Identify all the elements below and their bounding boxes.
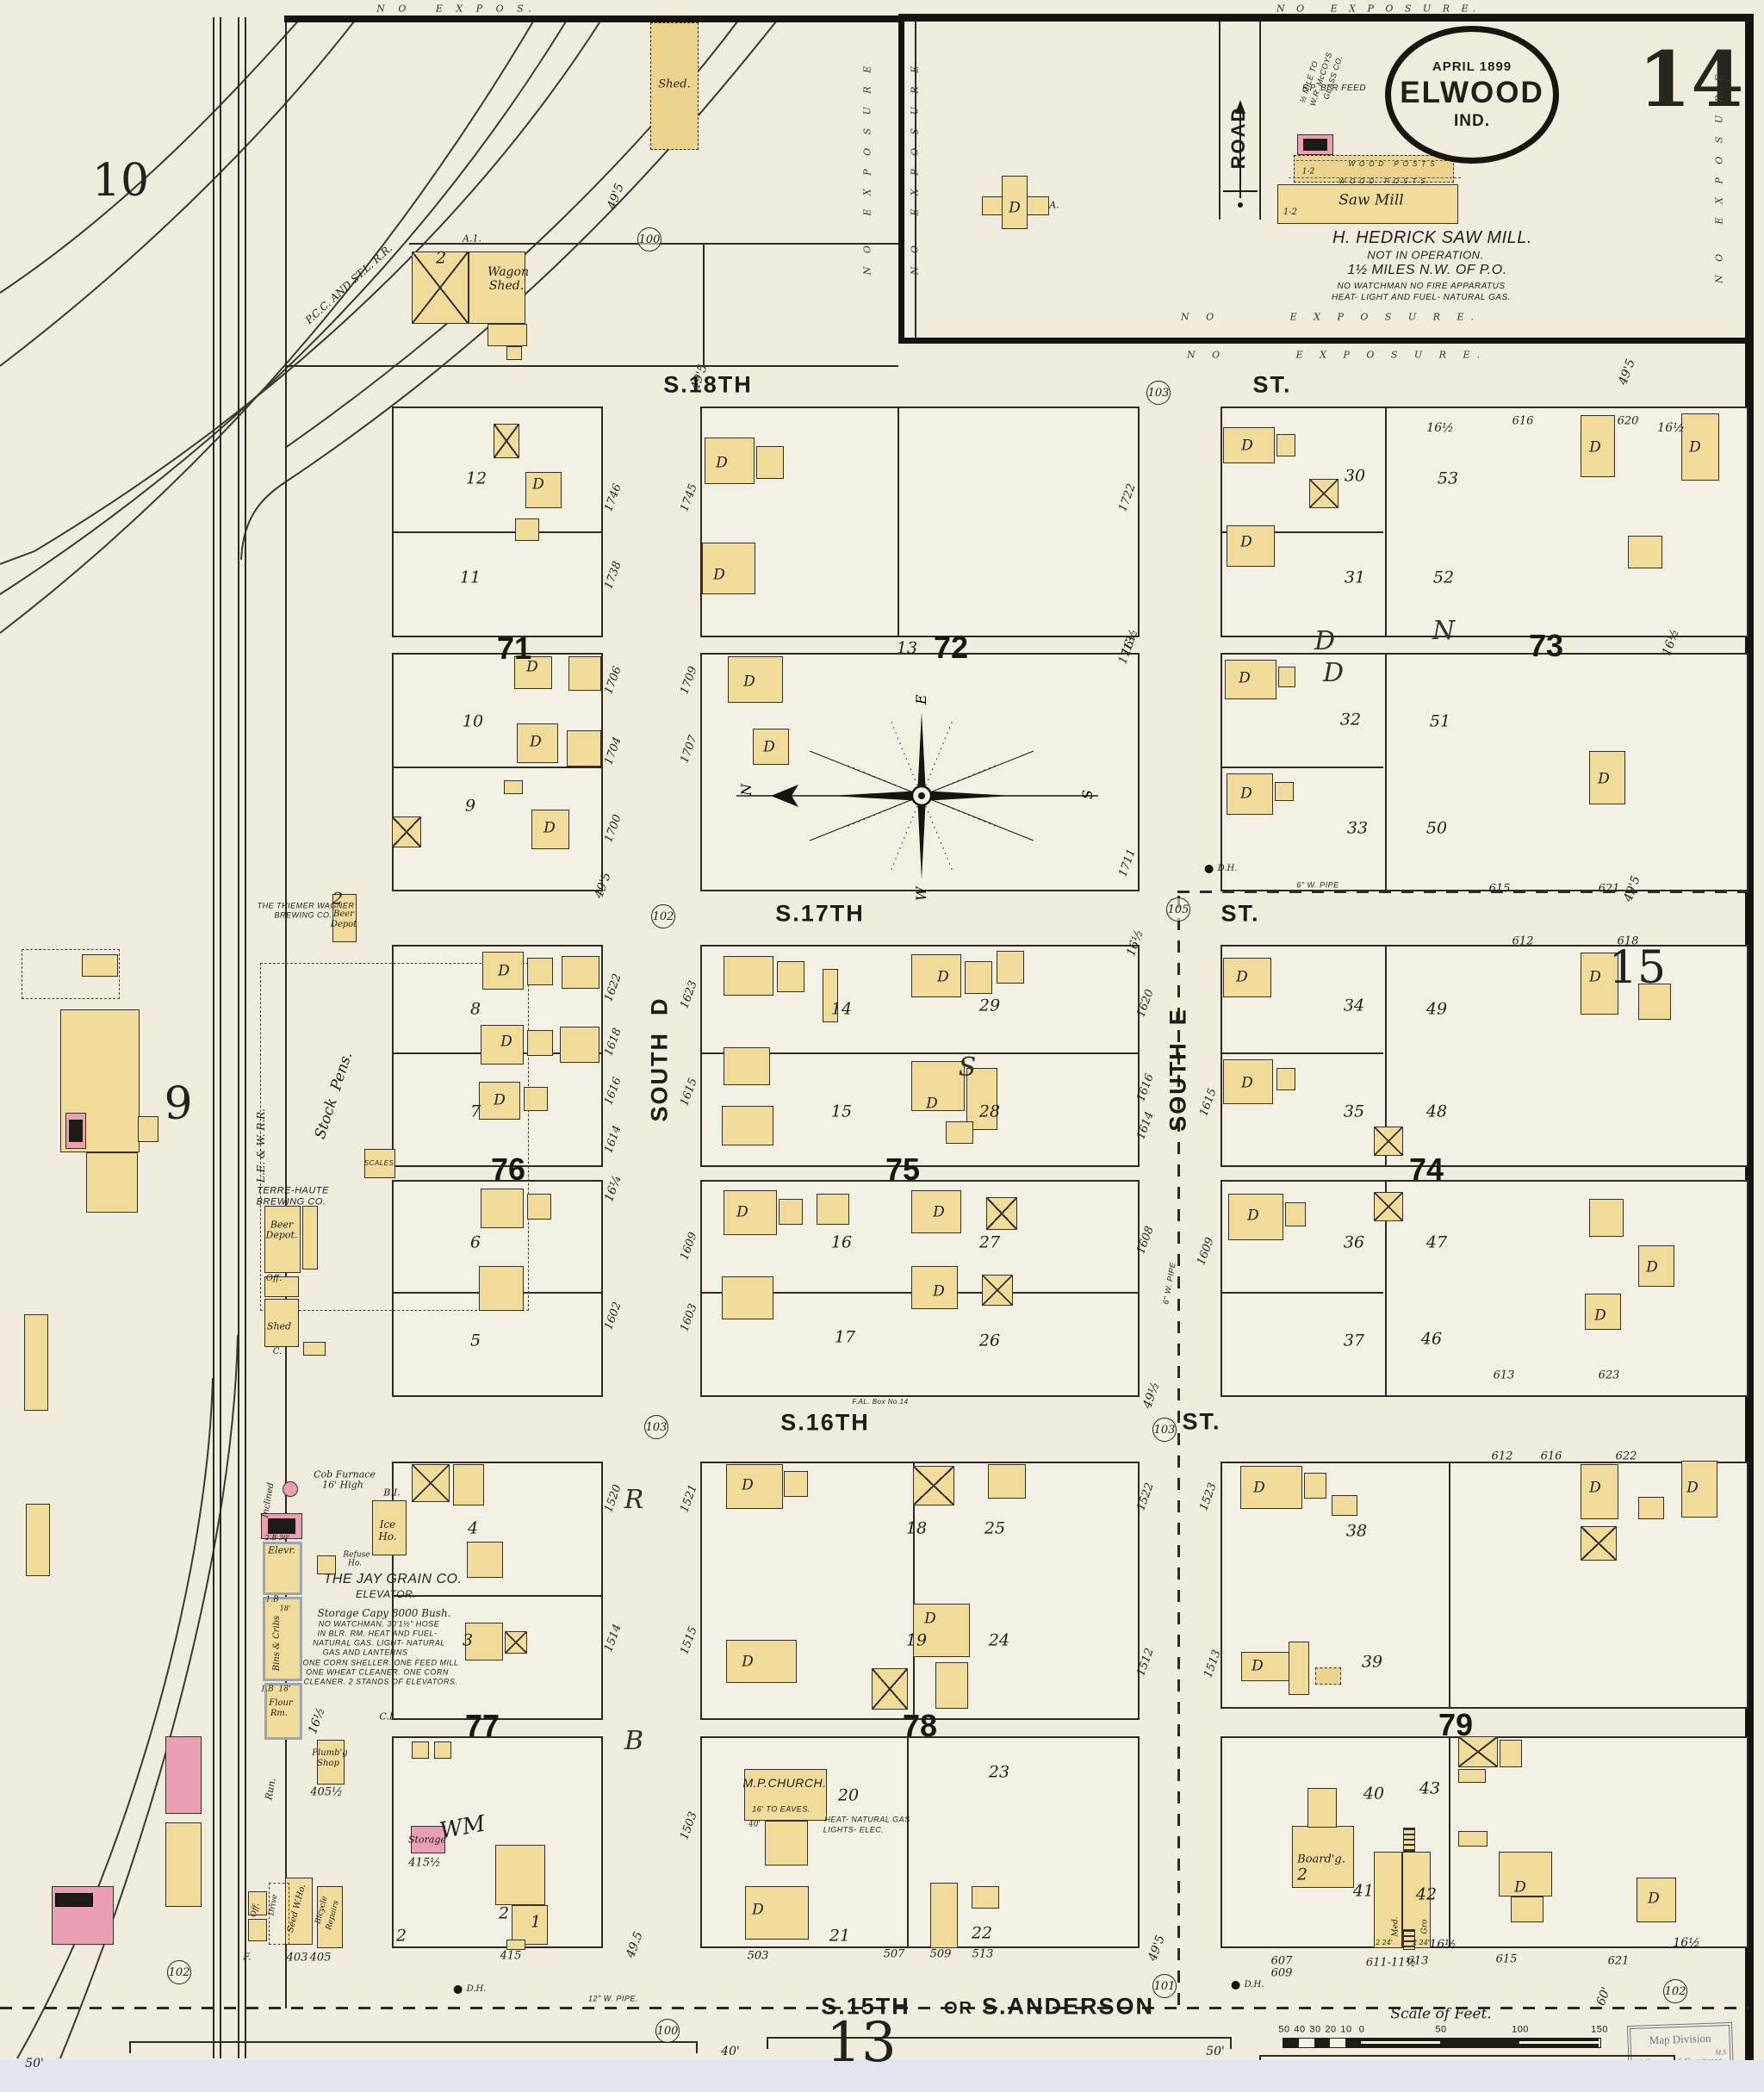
- map-city: ELWOOD: [1400, 76, 1544, 110]
- building: [1581, 1526, 1617, 1561]
- building: [494, 424, 519, 458]
- building: [1374, 1192, 1403, 1221]
- building: [527, 1194, 551, 1220]
- building: [756, 446, 784, 479]
- wood-posts-line: [1296, 160, 1460, 161]
- bracket-tick: [129, 2041, 131, 2053]
- building: [82, 954, 118, 977]
- block-line: [285, 365, 898, 367]
- beer-depot-building: [264, 1206, 301, 1273]
- scale-segment: [1519, 2039, 1599, 2047]
- thiemer-beer-depot: [332, 894, 357, 942]
- scale-segment: [1361, 2039, 1440, 2047]
- stamp-line1: Map Division: [1634, 2031, 1725, 2048]
- building: [784, 1471, 808, 1497]
- cob-furnace: [283, 1481, 298, 1497]
- building: [504, 780, 523, 794]
- shed-building: [264, 1299, 299, 1347]
- building: [872, 1668, 908, 1710]
- lot-line: [1222, 1292, 1383, 1294]
- building: [1637, 1878, 1676, 1922]
- building: [1581, 1464, 1618, 1519]
- building: [1458, 1831, 1488, 1847]
- building: [1227, 525, 1275, 567]
- building: [1638, 1497, 1664, 1519]
- water-pipe: [0, 2007, 1748, 2009]
- building: [911, 954, 961, 997]
- building: [465, 1623, 503, 1661]
- block-line: [703, 243, 705, 367]
- lot-line: [1222, 1052, 1383, 1054]
- building: [722, 1276, 773, 1319]
- building: [527, 1030, 553, 1056]
- elevator-head: [261, 1513, 302, 1539]
- lot-line: [907, 1738, 909, 1946]
- building: [560, 1027, 599, 1063]
- church-building: [744, 1769, 827, 1821]
- building: [479, 1082, 520, 1120]
- road-arrow: [1223, 95, 1258, 215]
- building: [412, 251, 469, 324]
- city-block-73: [1221, 407, 1748, 637]
- building: [527, 958, 553, 985]
- lot-line: [394, 1595, 601, 1597]
- building: [1289, 1642, 1309, 1695]
- building: [1277, 184, 1458, 224]
- building: [726, 1640, 797, 1683]
- building: [705, 438, 755, 484]
- plumbing-shop: [317, 1740, 345, 1785]
- rail-line: [213, 17, 214, 2058]
- building: [26, 1504, 50, 1576]
- rail-line: [220, 17, 221, 2058]
- scale-segment: [1299, 2039, 1314, 2047]
- building: [777, 961, 804, 992]
- adjacent-sheet-bracket: [1259, 2055, 1675, 2057]
- lot-line: [1385, 408, 1387, 636]
- building: [412, 1464, 450, 1502]
- inset-inner-line: [915, 20, 916, 338]
- building: [453, 1464, 484, 1505]
- bicycle-repair-shop: [317, 1886, 343, 1948]
- inset-border-bottom: [898, 338, 1753, 344]
- med-gro-store: [1374, 1852, 1431, 1948]
- building: [1315, 1667, 1341, 1685]
- wood-posts-line: [1289, 177, 1461, 178]
- inset-border-left: [898, 14, 904, 343]
- lot-line: [394, 767, 601, 768]
- compass-north: N: [738, 783, 755, 797]
- title-oval: APRIL 1899 ELWOOD IND.: [1385, 26, 1559, 164]
- building: [517, 723, 558, 763]
- elevator-building: [263, 1542, 302, 1595]
- building: [722, 1106, 773, 1145]
- building: [1276, 1068, 1295, 1090]
- bracket-tick: [767, 2037, 768, 2049]
- building: [165, 1822, 202, 1907]
- building: [1002, 176, 1028, 229]
- building: [1228, 1194, 1283, 1240]
- building: [515, 518, 539, 541]
- building: [913, 1604, 970, 1657]
- building: [531, 810, 569, 849]
- building: [1223, 427, 1275, 463]
- building: [524, 1087, 548, 1111]
- building: [481, 1189, 524, 1228]
- building: [1638, 984, 1671, 1020]
- building: [481, 1025, 524, 1065]
- lot-line: [1449, 1463, 1450, 1707]
- building: [392, 816, 421, 847]
- scale-segment: [1330, 2039, 1345, 2047]
- building: [434, 1741, 451, 1759]
- sheet-border-top: [898, 14, 1753, 22]
- building: [1225, 660, 1276, 699]
- office-building: [264, 1276, 299, 1297]
- building: [1278, 667, 1295, 687]
- building: [495, 1845, 545, 1905]
- building: [1276, 434, 1295, 456]
- building: [986, 1197, 1017, 1230]
- building: [1374, 1127, 1403, 1156]
- building: [1223, 958, 1271, 997]
- building: [1332, 1495, 1357, 1516]
- building: [1304, 1473, 1326, 1499]
- bins-cribs-building: [263, 1597, 302, 1681]
- building: [488, 324, 527, 346]
- sheet-number: 14: [1638, 34, 1743, 124]
- scale-segment: [1440, 2039, 1519, 2047]
- building: [412, 1741, 429, 1759]
- ladder-symbol: [1403, 1828, 1415, 1852]
- building: [165, 1736, 202, 1814]
- compass-south: S: [1079, 790, 1096, 799]
- building: [248, 1919, 267, 1941]
- building: [1223, 1059, 1273, 1104]
- building: [965, 961, 992, 994]
- city-block-72: [700, 407, 1140, 637]
- adjacent-sheet-bracket: [767, 2037, 1232, 2039]
- building: [1240, 1466, 1302, 1509]
- ladder-symbol: [1403, 1929, 1415, 1950]
- map-date: APRIL 1899: [1432, 59, 1512, 74]
- building: [702, 543, 755, 594]
- building: [1227, 773, 1273, 815]
- building: [988, 1464, 1026, 1499]
- building: [1681, 413, 1719, 481]
- sheet-border-top: [284, 16, 898, 22]
- refuse-house: [317, 1555, 336, 1574]
- building: [55, 1893, 93, 1907]
- building: [303, 1342, 326, 1356]
- building: [1589, 1199, 1624, 1237]
- building: [138, 1116, 158, 1142]
- stamp-initials: M.S: [1715, 2048, 1726, 2056]
- building: [1294, 155, 1454, 183]
- building: [1681, 1461, 1717, 1518]
- building: [911, 1266, 958, 1309]
- building: [514, 656, 552, 689]
- building: [817, 1194, 849, 1225]
- lot-line: [1222, 767, 1383, 768]
- building: [568, 656, 601, 691]
- building: [1581, 953, 1618, 1015]
- city-block-73: [1221, 653, 1748, 891]
- shed-building: [650, 22, 699, 150]
- building: [724, 1190, 777, 1235]
- building: [1241, 1652, 1293, 1681]
- church-building: [765, 1821, 808, 1865]
- lot-line: [394, 531, 601, 533]
- storage-building: [411, 1826, 445, 1853]
- rail-line: [238, 17, 239, 2058]
- water-pipe: [1177, 896, 1180, 2008]
- scale-segment: [1345, 2039, 1361, 2047]
- boarding-house: [1292, 1826, 1354, 1888]
- building: [1285, 1202, 1306, 1226]
- building: [1585, 1294, 1621, 1330]
- building: [724, 956, 773, 996]
- scale-segment: [1314, 2039, 1330, 2047]
- drive-way: [269, 1883, 289, 1945]
- scale-bar: [1283, 2038, 1601, 2048]
- block-line: [409, 243, 898, 245]
- boiler-building: [65, 1113, 86, 1149]
- building: [562, 956, 599, 989]
- building: [479, 1266, 524, 1311]
- scale-segment: [1283, 2039, 1299, 2047]
- sanborn-map-sheet: N E S W APRIL 1899 ELWOOD IND. 14 Map Di…: [0, 0, 1764, 2092]
- building: [1499, 1852, 1552, 1896]
- building: [86, 1152, 138, 1213]
- boiler-building: [1297, 134, 1333, 155]
- building: [506, 1940, 525, 1950]
- paper-margin: [0, 2060, 1764, 2092]
- ice-house: [372, 1500, 407, 1555]
- building: [726, 1464, 783, 1509]
- building: [997, 951, 1024, 984]
- building: [913, 1466, 954, 1505]
- building: [525, 472, 562, 508]
- building: [982, 1275, 1013, 1306]
- building: [745, 1886, 809, 1940]
- building: [911, 1190, 961, 1233]
- building: [935, 1662, 968, 1709]
- building: [505, 1631, 527, 1654]
- building: [467, 1542, 503, 1578]
- building: [779, 1199, 803, 1225]
- building: [1275, 782, 1294, 801]
- bracket-tick: [696, 2041, 698, 2053]
- adjacent-sheet-bracket: [129, 2041, 698, 2043]
- building: [1581, 415, 1615, 477]
- building: [302, 1206, 318, 1269]
- building: [482, 952, 524, 990]
- map-state: IND.: [1454, 112, 1490, 131]
- store-building: [930, 1883, 958, 1948]
- building: [724, 1047, 770, 1085]
- lot-line: [1385, 655, 1387, 890]
- building: [1589, 751, 1625, 804]
- compass-rose: N E S W: [736, 684, 1098, 908]
- building: [24, 1314, 48, 1411]
- building: [1511, 1896, 1543, 1922]
- scales-building: [364, 1149, 395, 1178]
- wagon-shed-building: [469, 251, 525, 324]
- road-edge: [1259, 22, 1261, 220]
- compass-east: E: [913, 694, 929, 705]
- building: [1458, 1736, 1498, 1767]
- building: [911, 1061, 965, 1111]
- bracket-tick: [1230, 2037, 1232, 2049]
- building: [567, 730, 601, 767]
- building: [1309, 479, 1339, 508]
- rail-line: [245, 17, 246, 2058]
- building: [1500, 1740, 1522, 1767]
- flour-room-building: [264, 1683, 302, 1740]
- boarding-house: [1307, 1788, 1337, 1828]
- building: [972, 1886, 999, 1909]
- building: [1458, 1769, 1486, 1783]
- building: [1638, 1245, 1674, 1287]
- building: [823, 969, 838, 1022]
- building: [248, 1891, 267, 1915]
- lot-line: [898, 408, 899, 636]
- compass-west: W: [913, 885, 929, 901]
- lot-line: [1449, 1738, 1450, 1946]
- building: [1628, 536, 1662, 568]
- building: [946, 1121, 973, 1144]
- city-block-74: [1221, 945, 1748, 1167]
- road-edge: [1219, 22, 1221, 220]
- building: [506, 346, 522, 360]
